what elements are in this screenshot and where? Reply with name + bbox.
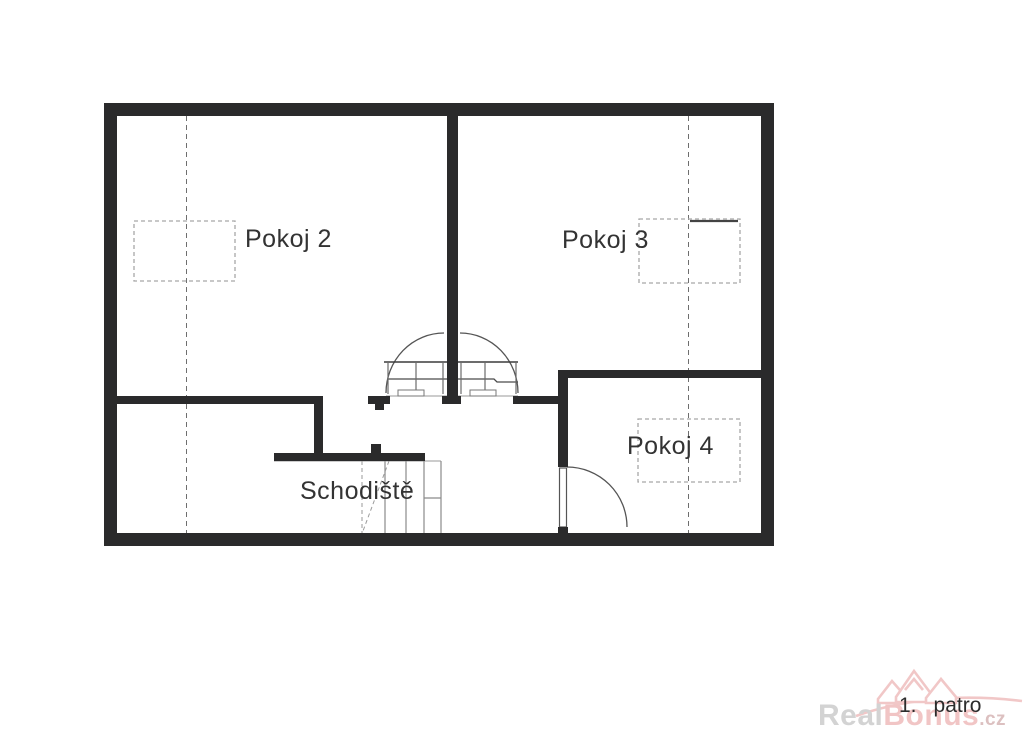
- pokoj4-left-wall-cap: [558, 527, 568, 535]
- door-sill: [470, 390, 496, 396]
- partition-pokoj2-pokoj3: [447, 116, 458, 403]
- pokoj4-left-wall: [558, 378, 568, 467]
- floor-number: 1.: [899, 694, 917, 717]
- interior-wall-left: [117, 396, 323, 404]
- outer-wall-bottom: [104, 533, 774, 546]
- floor-plan-drawing: [0, 0, 1024, 740]
- outer-wall-left: [104, 103, 117, 546]
- outer-wall-top: [104, 103, 774, 116]
- room-label-pokoj-3: Pokoj 3: [562, 226, 649, 255]
- interior-wall-stub-center: [442, 396, 461, 404]
- skylight-dashed-rect-pokoj-2: [134, 221, 235, 281]
- door-swing-pokoj-4: [560, 467, 628, 527]
- door-stop: [375, 404, 384, 410]
- room-label-pokoj-4: Pokoj 4: [627, 432, 714, 461]
- walls: [104, 103, 774, 546]
- interior-wall-stub-left: [368, 396, 390, 404]
- pokoj4-top-wall: [558, 370, 762, 378]
- floor-plan-canvas: Pokoj 2 Pokoj 3 Pokoj 4 Schodiště RealBo…: [0, 0, 1024, 740]
- interior-wall-vertical: [314, 396, 323, 461]
- stair-wall: [274, 453, 425, 461]
- stair-post: [371, 444, 381, 454]
- room-label-pokoj-2: Pokoj 2: [245, 225, 332, 254]
- outer-wall-right: [761, 103, 774, 546]
- door-arc-pokoj-2: [386, 333, 444, 393]
- door-sill: [398, 390, 424, 396]
- room-label-schodiste: Schodiště: [300, 477, 414, 506]
- skylight-dashed-rect-pokoj-3: [639, 219, 740, 283]
- door-leaf-pokoj-4: [560, 468, 567, 527]
- door-arc-pokoj-4: [567, 467, 627, 527]
- watermark-brand-gray: Real: [818, 699, 883, 732]
- watermark-brand-suffix: .cz: [979, 709, 1006, 730]
- door-arc-pokoj-3: [460, 333, 518, 393]
- floor-indicator: 1.patro: [899, 694, 981, 718]
- section-lines: [187, 116, 689, 533]
- floor-label: patro: [934, 694, 982, 717]
